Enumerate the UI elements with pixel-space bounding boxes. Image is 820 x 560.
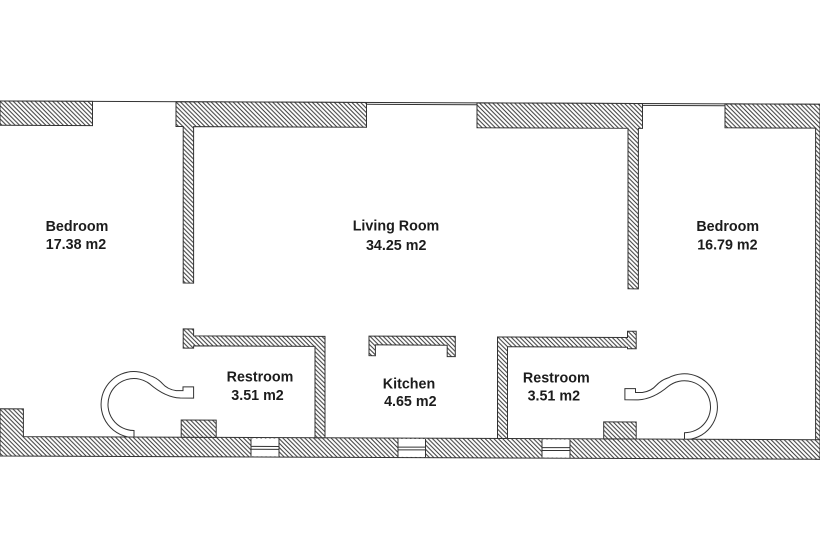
svg-text:3.51 m2: 3.51 m2 <box>231 388 284 404</box>
svg-text:Restroom: Restroom <box>227 369 294 385</box>
svg-text:3.51 m2: 3.51 m2 <box>528 389 581 405</box>
svg-text:Kitchen: Kitchen <box>383 377 435 393</box>
svg-text:Bedroom: Bedroom <box>696 219 759 235</box>
svg-text:4.65 m2: 4.65 m2 <box>384 394 437 410</box>
svg-text:17.38 m2: 17.38 m2 <box>46 237 106 253</box>
svg-text:Living Room: Living Room <box>353 218 440 234</box>
svg-text:Bedroom: Bedroom <box>46 219 109 235</box>
svg-text:34.25 m2: 34.25 m2 <box>366 238 426 254</box>
svg-text:16.79 m2: 16.79 m2 <box>697 237 757 253</box>
svg-text:Restroom: Restroom <box>523 371 590 387</box>
